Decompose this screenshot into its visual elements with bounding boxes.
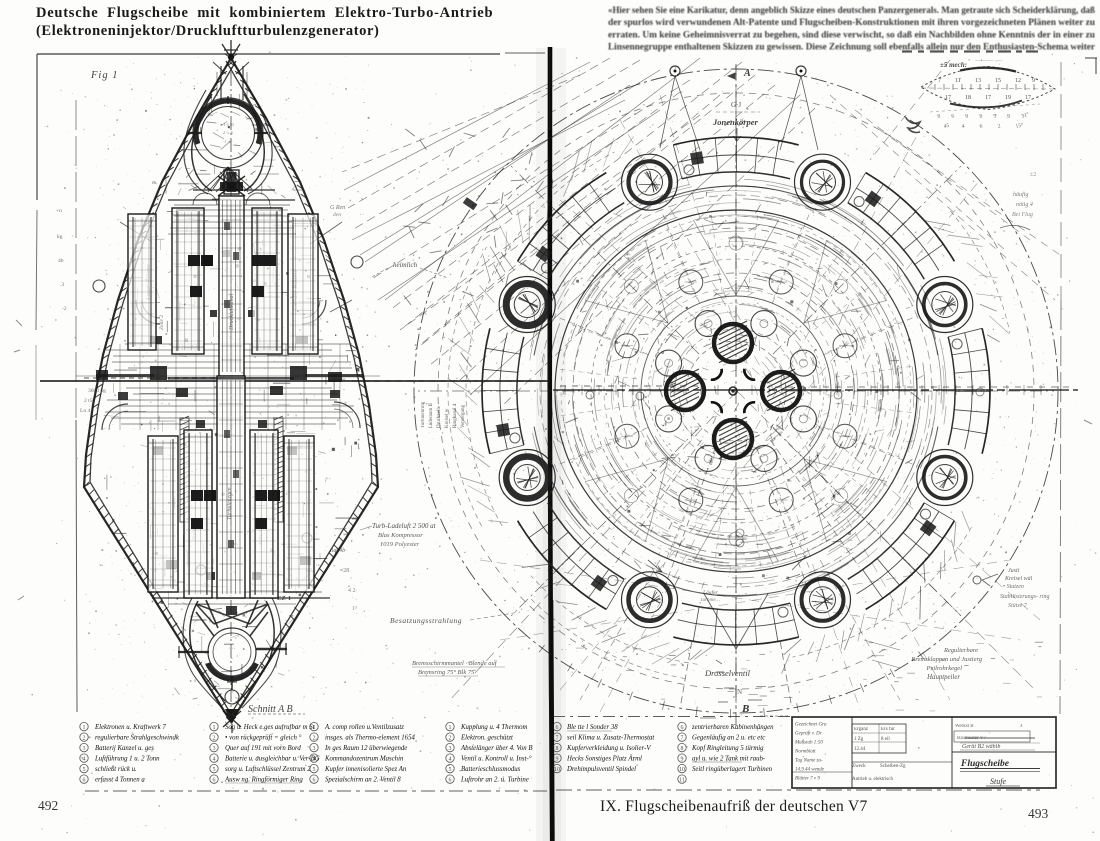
svg-text:Stütze 7: Stütze 7 — [1008, 603, 1028, 609]
svg-text:15: 15 — [995, 78, 1001, 84]
svg-text:·+: ·+ — [44, 124, 49, 130]
svg-text:—•—— ·—: —•—— ·— — [974, 58, 1003, 64]
svg-text:Druckluftkanal: Druckluftkanal — [228, 293, 235, 331]
svg-text:1019 Polyester: 1019 Polyester — [380, 541, 420, 548]
svg-text:18: 18 — [965, 95, 971, 101]
svg-text:Gegenläufig an 2 u. etc etc: Gegenläufig an 2 u. etc etc — [692, 735, 765, 742]
svg-text:Hecks Sonstiges Platz Ärml: Hecks Sonstiges Platz Ärml — [566, 756, 642, 763]
svg-text:Versorgung: Versorgung — [461, 405, 466, 428]
svg-text:insges. als Thermo-element 165: insges. als Thermo-element 1654 — [325, 735, 415, 742]
svg-text:«Hier sehen Sie eine Karikatur: «Hier sehen Sie eine Karikatur, denn ang… — [608, 5, 1095, 15]
svg-text:6: 6 — [213, 778, 216, 784]
svg-text:Abstelänger über 4. Von B: Abstelänger über 4. Von B — [460, 745, 533, 752]
svg-text:Blätter 7 v 9: Blätter 7 v 9 — [795, 777, 820, 782]
svg-text:2 t50: 2 t50 — [84, 398, 95, 404]
svg-text:14.9.44 wende: 14.9.44 wende — [795, 768, 825, 773]
svg-text:Jonenkörper: Jonenkörper — [712, 117, 759, 127]
svg-text:2: 2 — [83, 736, 86, 742]
svg-text:4: 4 — [213, 757, 216, 763]
svg-text:1: 1 — [313, 725, 316, 731]
svg-text:≈28: ≈28 — [340, 568, 349, 574]
svg-text:Ventil u. Kontroll u. Inst-°: Ventil u. Kontroll u. Inst-° — [461, 756, 532, 763]
svg-text:Baumuster V7: Baumuster V7 — [957, 736, 986, 741]
svg-text:• von rückgeprüft = gleich °: • von rückgeprüft = gleich ° — [225, 735, 302, 742]
svg-text:N: N — [737, 688, 742, 696]
svg-text:4: 4 — [313, 757, 316, 763]
svg-text:8 eil: 8 eil — [881, 737, 890, 742]
svg-text:Stabilisierungs- ring: Stabilisierungs- ring — [1000, 594, 1050, 600]
svg-text:6: 6 — [313, 778, 316, 784]
svg-text:Batterie u. ausgleichbar u. Ve: Batterie u. ausgleichbar u. Ver-BG — [225, 756, 320, 763]
svg-text:seil Klima u. Zusatz-Thermost: seil Klima u. Zusatz-Thermostat — [567, 735, 655, 742]
svg-text:493: 493 — [1028, 806, 1049, 821]
svg-text:A. comp rollen u.Ventilzusatz: A. comp rollen u.Ventilzusatz — [324, 724, 404, 731]
svg-text:Ausw ng. Ringförmiger Ring: Ausw ng. Ringförmiger Ring — [224, 777, 303, 784]
svg-text:heimlich: heimlich — [393, 261, 418, 269]
svg-text:2: 2 — [213, 736, 216, 742]
svg-text:nötig 4: nötig 4 — [1016, 201, 1033, 208]
svg-text:4: 4 — [83, 757, 86, 763]
svg-text:regulierbare Strahlgeschwindk: regulierbare Strahlgeschwindk — [95, 735, 180, 742]
svg-text:Ergänz: Ergänz — [854, 727, 869, 732]
svg-text:8: 8 — [681, 746, 684, 752]
svg-text:9: 9 — [681, 757, 684, 763]
svg-text:Regulierbare: Regulierbare — [943, 647, 978, 654]
svg-text:1: 1 — [83, 725, 86, 731]
svg-text:tief 4b·: tief 4b· — [330, 547, 347, 554]
svg-text:2: 2 — [449, 736, 452, 742]
svg-text:17: 17 — [1025, 95, 1031, 101]
svg-text:Quer auf 191 mit vorn Bord: Quer auf 191 mit vorn Bord — [225, 745, 301, 752]
svg-text:Kommandozentrum Maschin: Kommandozentrum Maschin — [324, 756, 404, 763]
svg-text:3: 3 — [213, 746, 216, 752]
svg-text:G Ren: G Ren — [330, 205, 345, 211]
svg-text:Luftführung 1 u. 2 Tonn: Luftführung 1 u. 2 Tonn — [94, 756, 160, 763]
svg-text:Elektronen u. Kraftwerk 7: Elektronen u. Kraftwerk 7 — [94, 724, 166, 731]
svg-text:EZ·1: EZ·1 — [277, 595, 291, 602]
svg-text:• Stutzen: • Stutzen — [1003, 584, 1024, 590]
svg-text:19: 19 — [1005, 95, 1011, 101]
svg-text:IX. Flugscheibenaufriß der deu: IX. Flugscheibenaufriß der deutschen V7 — [600, 798, 868, 815]
svg-text:12.44: 12.44 — [854, 747, 866, 752]
svg-text:Seitl ringüberlagert Turbinen: Seitl ringüberlagert Turbinen — [692, 766, 773, 773]
svg-text:Ble tte l Sonder 38: Ble tte l Sonder 38 — [567, 724, 618, 731]
svg-text:Drehimpulsventil Spindel: Drehimpulsventil Spindel — [566, 766, 636, 773]
svg-text:Kreisel wäl: Kreisel wäl — [1004, 576, 1033, 582]
svg-text:Turb-Ladeluft 2 500 at: Turb-Ladeluft 2 500 at — [372, 522, 437, 530]
svg-text:Stufe: Stufe — [990, 777, 1006, 786]
svg-text:Ln 4: Ln 4 — [80, 408, 90, 414]
svg-text:Gezeichnet Gru: Gezeichnet Gru — [795, 723, 827, 728]
svg-text:17: 17 — [985, 95, 991, 101]
svg-text:G·J: G·J — [731, 101, 741, 109]
svg-text:Drosselventil: Drosselventil — [704, 668, 751, 678]
svg-text:Geprüft v. Dr: Geprüft v. Dr — [795, 732, 822, 737]
svg-text:A: A — [743, 68, 751, 79]
svg-text:7: 7 — [681, 736, 684, 742]
svg-text:1 Zg: 1 Zg — [854, 737, 864, 742]
svg-text:1³: 1³ — [352, 606, 357, 612]
svg-text:5: 5 — [449, 767, 452, 773]
svg-text:Turbine…: Turbine… — [700, 598, 721, 603]
svg-text:3: 3 — [83, 746, 86, 752]
svg-text:Normblatt: Normblatt — [794, 750, 816, 755]
svg-text:Ringkanal 4: Ringkanal 4 — [453, 403, 458, 428]
svg-text:m.: m. — [152, 180, 158, 186]
svg-text:Kupferverkleidung u. Isolier-V: Kupferverkleidung u. Isolier-V — [566, 745, 651, 752]
svg-text:ayl u. wie 2 Tank mit raub-: ayl u. wie 2 Tank mit raub- — [692, 756, 766, 763]
svg-text:zentrierbaren Kabinenhängen: zentrierbaren Kabinenhängen — [691, 724, 774, 731]
svg-text:erfasst 4 Tonnen a: erfasst 4 Tonnen a — [95, 777, 145, 784]
svg-text:Kreisel w: Kreisel w — [445, 408, 450, 428]
svg-text:Batterieschlussmodus: Batterieschlussmodus — [461, 766, 521, 773]
svg-text:·l ·e·: ·l ·e· — [223, 140, 233, 145]
svg-text:erraten. Um keine Geheimnisver: erraten. Um keine Geheimnisverrat zu beg… — [608, 29, 1095, 39]
svg-text:5: 5 — [313, 767, 316, 773]
svg-text:+n: +n — [56, 208, 62, 214]
svg-text:11: 11 — [679, 778, 685, 784]
svg-text:12: 12 — [1015, 78, 1021, 84]
svg-text:Bei Flug: Bei Flug — [1012, 212, 1033, 218]
svg-text:Zweck: Zweck — [852, 764, 866, 769]
svg-text:3: 3 — [449, 746, 452, 752]
svg-text:•: • — [231, 657, 233, 662]
svg-text:1: 1 — [213, 725, 216, 731]
svg-text:Schnitt A B: Schnitt A B — [248, 704, 293, 715]
svg-text:4 2·: 4 2· — [348, 588, 358, 594]
svg-text:Linsennegruppe enthaltenen Ski: Linsennegruppe enthaltenen Skizzen zu ge… — [608, 42, 1095, 52]
svg-text:±5 mech:: ±5 mech: — [940, 61, 967, 69]
svg-text:Turbinenring: Turbinenring — [421, 401, 426, 428]
svg-text:492: 492 — [38, 798, 58, 813]
svg-text:10: 10 — [679, 767, 685, 773]
svg-text:sorg u. Luftschlüssel Zentrum: sorg u. Luftschlüssel Zentrum 2 — [225, 766, 311, 773]
svg-text:Gerät B2 wählb: Gerät B2 wählb — [962, 744, 1000, 750]
svg-text:3600 kg: 3600 kg — [88, 388, 106, 394]
svg-text:9: 9 — [1032, 78, 1035, 84]
svg-text:Luftrohr an 2. u. Turbine: Luftrohr an 2. u. Turbine — [460, 777, 529, 784]
svg-text:der spurlos wird verwundenen A: der spurlos wird verwundenen Alt-Patente… — [608, 17, 1095, 27]
svg-text:5: 5 — [83, 767, 86, 773]
svg-text:Flugscheibe: Flugscheibe — [960, 759, 1010, 769]
svg-text:Deutsche Flugscheibe mit ko: Deutsche Flugscheibe mit kombiniertem El… — [36, 5, 493, 21]
svg-text:±2: ±2 — [1030, 172, 1036, 178]
svg-text:Elektron. geschützt: Elektron. geschützt — [460, 735, 514, 742]
svg-text:.3: .3 — [60, 282, 64, 288]
svg-text:Antrieb u. elektrisch: Antrieb u. elektrisch — [852, 777, 893, 782]
svg-text:6: 6 — [83, 778, 86, 784]
svg-text:· ··: · ·· — [228, 646, 236, 652]
svg-text:6: 6 — [681, 725, 684, 731]
svg-text:B: B — [741, 703, 749, 715]
svg-text:Besatzungsstrahlung: Besatzungsstrahlung — [390, 616, 462, 625]
svg-text:Peilrohrkegel: Peilrohrkegel — [926, 665, 963, 672]
svg-text:1: 1 — [449, 725, 452, 731]
svg-text:Kupplung u. 4 Thermom: Kupplung u. 4 Thermom — [460, 724, 528, 731]
svg-text:Kopf Ringleitung 5 türmig: Kopf Ringleitung 5 türmig — [691, 745, 764, 752]
svg-text:Batterij Kanzel u. ges: Batterij Kanzel u. ges — [95, 745, 154, 752]
svg-text:(Elektroneninjektor/Druckluftt: (Elektroneninjektor/Druckluftturbulenzge… — [36, 23, 379, 39]
svg-text:Bremsschirmmantel · Blende auf: Bremsschirmmantel · Blende auf — [412, 660, 498, 667]
svg-text:häufig: häufig — [1013, 191, 1028, 198]
svg-text:Läufer: Läufer — [702, 589, 719, 596]
svg-text:7: 7 — [938, 78, 941, 84]
svg-text:Justi: Justi — [1008, 568, 1020, 574]
svg-text:Blas Kompressor: Blas Kompressor — [378, 532, 423, 539]
svg-text:Sog u. Heck e.ges aufrufbar m: Sog u. Heck e.ges aufrufbar m St — [225, 724, 316, 731]
svg-text:-2: -2 — [62, 306, 67, 312]
svg-text:3: 3 — [313, 746, 316, 752]
svg-text:Turbulenzgen: Turbulenzgen — [227, 487, 233, 520]
svg-text:In ges Raum 12 überwiegende: In ges Raum 12 überwiegende — [324, 745, 407, 752]
svg-text:2·5 k: 2·5 k — [223, 131, 234, 136]
svg-text:Hauptpeiler: Hauptpeiler — [926, 674, 960, 681]
svg-text:Maßstab 1:50: Maßstab 1:50 — [794, 741, 823, 746]
svg-text:Spezialschirm an 2. Ventil 8: Spezialschirm an 2. Ventil 8 — [325, 777, 401, 784]
svg-text:Fig 1: Fig 1 — [90, 70, 118, 81]
svg-text:17: 17 — [945, 95, 951, 101]
svg-text:6: 6 — [449, 778, 452, 784]
svg-text:13: 13 — [975, 78, 981, 84]
svg-text:Scheiben-Zg: Scheiben-Zg — [880, 764, 906, 769]
svg-text:kg: kg — [57, 234, 63, 240]
svg-text:4b: 4b — [58, 258, 64, 264]
svg-text:4: 4 — [449, 757, 452, 763]
svg-text:Tag Name zu-: Tag Name zu- — [795, 759, 823, 764]
svg-text:Kupfer innenisolierte Spez An: Kupfer innenisolierte Spez An — [324, 766, 407, 773]
svg-text:2: 2 — [313, 736, 316, 742]
svg-text:Werkst B: Werkst B — [955, 724, 974, 729]
svg-text:Ers für: Ers für — [881, 727, 895, 732]
svg-text:5: 5 — [213, 767, 216, 773]
svg-text:Zelle 2: Zelle 2 — [159, 315, 165, 330]
svg-text:schließt rück u.: schließt rück u. — [95, 766, 137, 773]
